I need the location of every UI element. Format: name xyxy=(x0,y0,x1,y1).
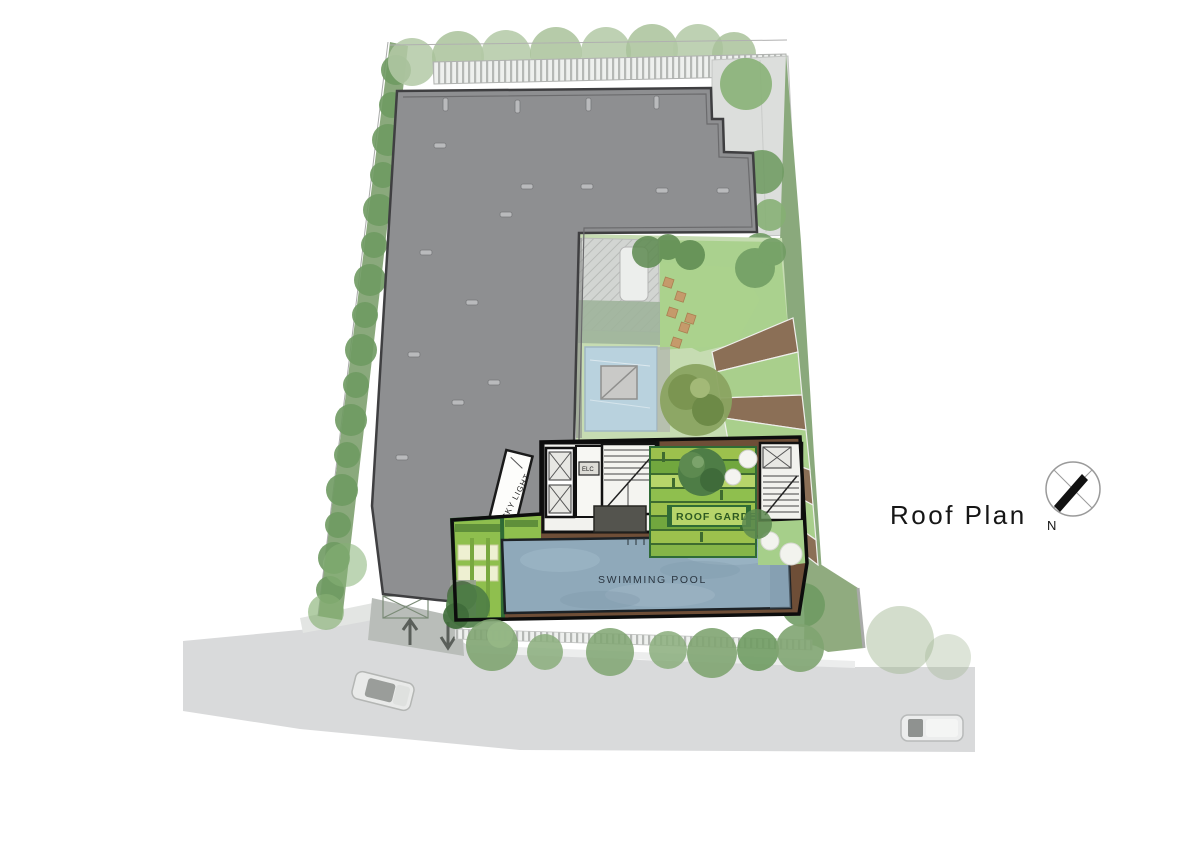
roof-garden: ROOF GARDEN xyxy=(650,447,766,557)
annotations: Roof Plan N xyxy=(890,462,1100,533)
roof-plan-drawing: SKY LIGHT xyxy=(0,0,1200,849)
tree xyxy=(925,634,971,680)
elevator-shaft xyxy=(546,448,574,517)
plan-title: Roof Plan xyxy=(890,500,1027,530)
lounger xyxy=(458,545,498,560)
planter-pot xyxy=(780,543,802,565)
courtyard-tree xyxy=(660,364,732,436)
garden-tree xyxy=(678,448,726,496)
core-right xyxy=(760,443,802,520)
water-feature xyxy=(585,347,670,432)
car-icon xyxy=(901,715,963,741)
pool-label: SWIMMING POOL xyxy=(598,574,707,586)
planter-pot xyxy=(725,469,741,485)
north-compass-icon: N xyxy=(1046,462,1100,533)
planter-pot xyxy=(739,450,757,468)
tree xyxy=(866,606,934,674)
entrance-canopy xyxy=(578,300,660,345)
north-label: N xyxy=(1047,518,1057,533)
lounger xyxy=(458,566,498,581)
electrical-room-label: ELC xyxy=(582,467,594,473)
shrub xyxy=(742,509,772,539)
roof-plan-page: SKY LIGHT xyxy=(0,0,1200,849)
stairs xyxy=(602,444,656,514)
deck-mat xyxy=(594,506,646,532)
